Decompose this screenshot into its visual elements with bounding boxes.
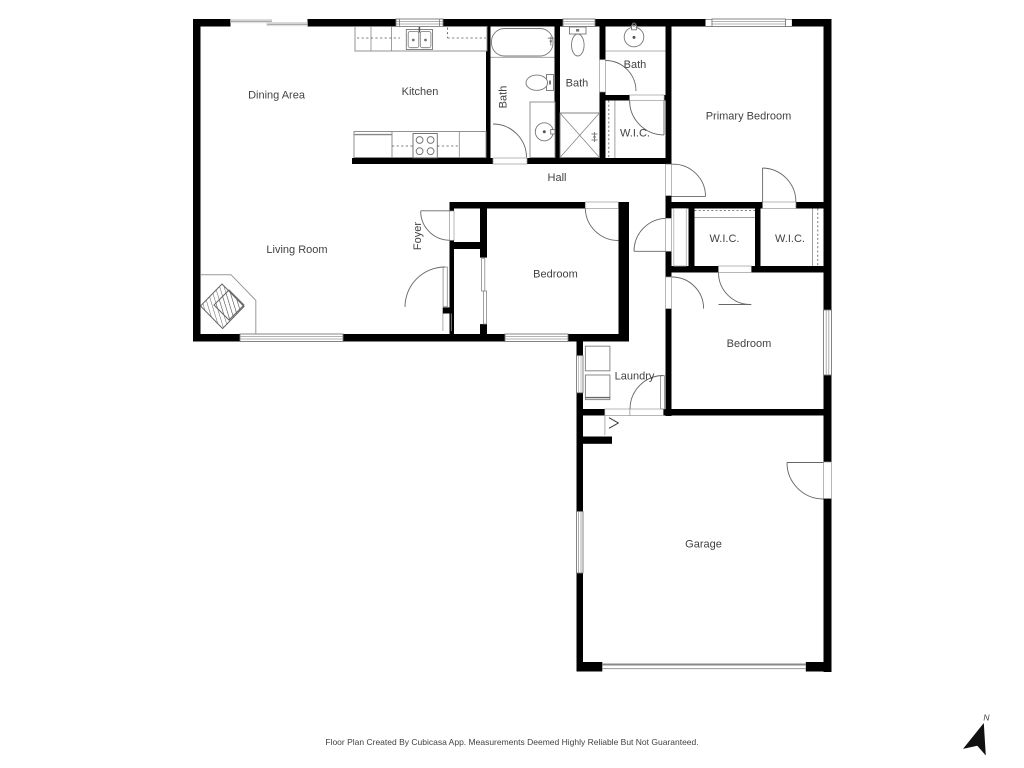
svg-text:W.I.C.: W.I.C. [620, 128, 650, 140]
svg-text:Floor Plan Created By Cubicasa: Floor Plan Created By Cubicasa App. Meas… [325, 737, 698, 747]
svg-text:W.I.C.: W.I.C. [775, 233, 805, 245]
svg-text:W.I.C.: W.I.C. [710, 233, 740, 245]
svg-text:Bath: Bath [566, 78, 589, 90]
svg-text:Bedroom: Bedroom [727, 338, 772, 350]
svg-text:Bath: Bath [624, 59, 647, 71]
svg-text:Bath: Bath [498, 86, 510, 109]
svg-text:Dining Area: Dining Area [248, 90, 306, 102]
svg-text:Living Room: Living Room [266, 244, 327, 256]
svg-text:Garage: Garage [685, 539, 722, 551]
svg-text:N: N [983, 713, 990, 723]
svg-text:Laundry: Laundry [615, 371, 655, 383]
svg-text:Hall: Hall [548, 172, 567, 184]
svg-text:Primary Bedroom: Primary Bedroom [706, 111, 792, 123]
svg-text:Foyer: Foyer [412, 222, 424, 250]
svg-text:Kitchen: Kitchen [402, 86, 439, 98]
svg-text:Bedroom: Bedroom [533, 269, 578, 281]
